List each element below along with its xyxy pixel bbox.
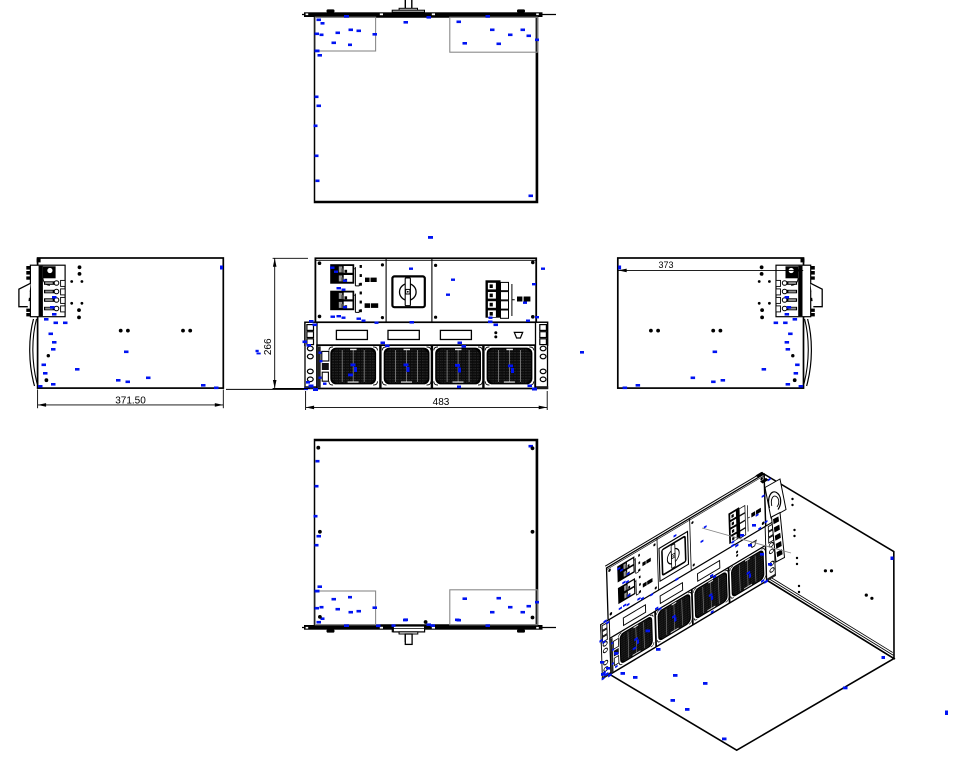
svg-text:266: 266: [263, 338, 274, 355]
svg-text:483: 483: [433, 397, 450, 408]
svg-text:373: 373: [658, 260, 673, 270]
svg-text:371.50: 371.50: [115, 396, 146, 407]
